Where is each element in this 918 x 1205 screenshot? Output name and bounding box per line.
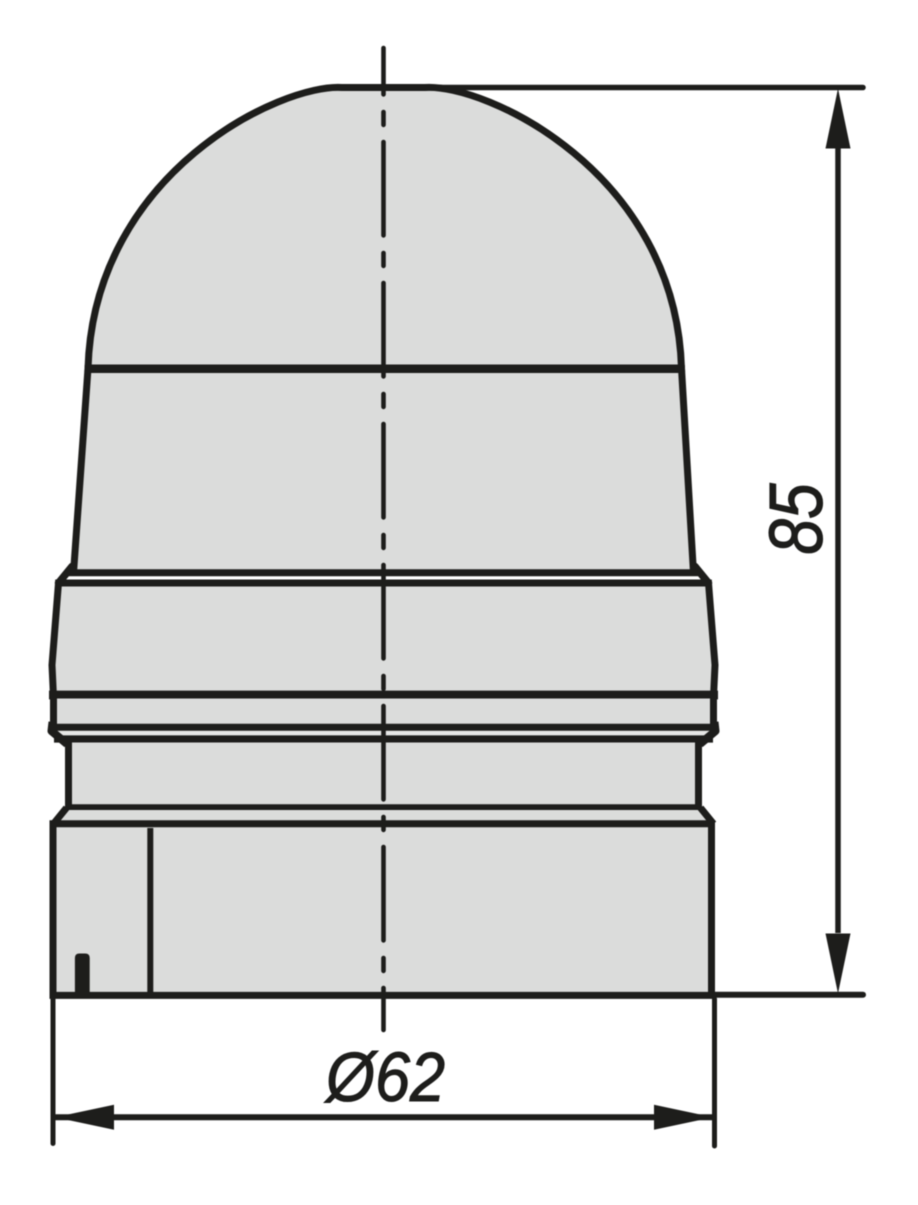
svg-text:85: 85: [754, 482, 838, 554]
svg-text:Ø62: Ø62: [324, 1039, 445, 1116]
